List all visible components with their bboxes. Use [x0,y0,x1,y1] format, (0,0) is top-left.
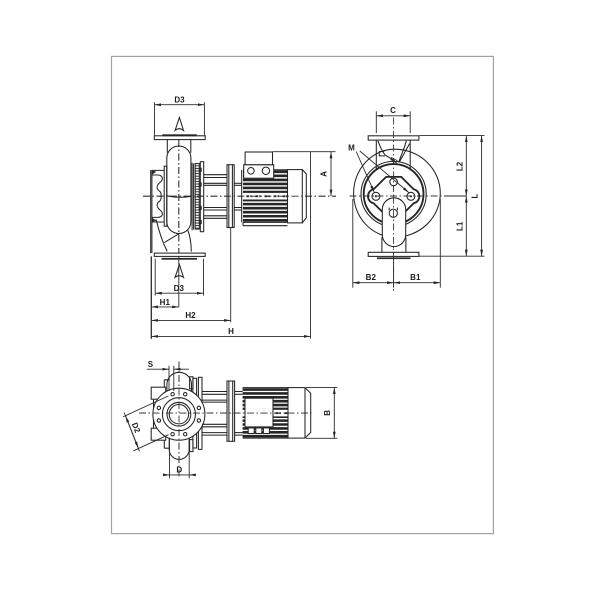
svg-text:L1: L1 [455,221,464,231]
svg-text:L2: L2 [455,161,464,171]
svg-text:B: B [323,410,332,416]
svg-text:S: S [148,360,154,369]
svg-text:H2: H2 [185,311,196,320]
svg-text:M: M [348,144,355,153]
svg-text:H: H [228,327,234,336]
svg-text:B2: B2 [366,273,377,282]
svg-text:H1: H1 [160,298,171,307]
svg-text:L: L [471,194,480,199]
svg-text:C: C [390,106,396,115]
svg-text:D: D [176,465,182,474]
svg-text:B1: B1 [410,273,421,282]
svg-text:A: A [320,171,329,177]
svg-text:D3: D3 [174,95,185,104]
